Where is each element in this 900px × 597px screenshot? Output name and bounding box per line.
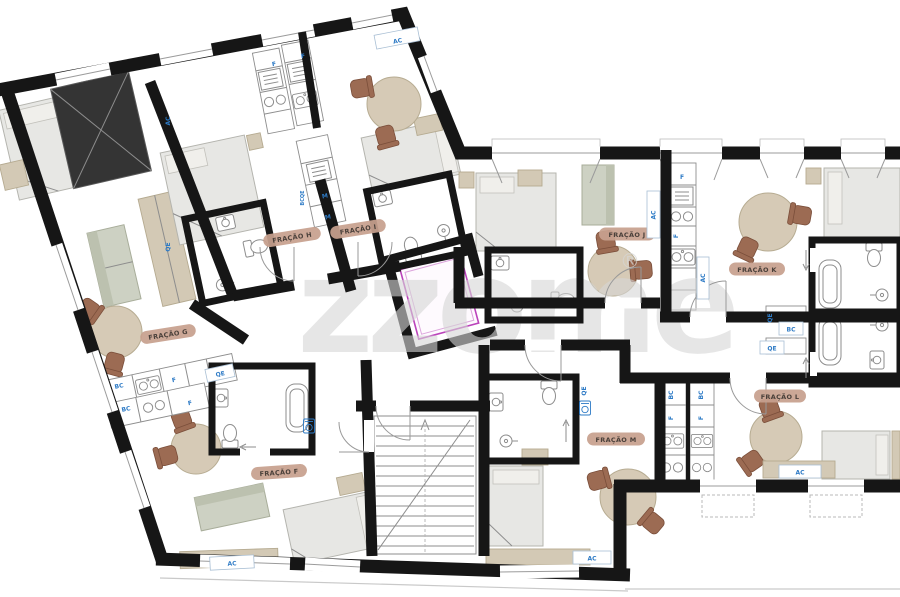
room-label-text: FRAÇÃO M	[596, 435, 637, 444]
wall	[366, 360, 372, 556]
code-label-qe: QE	[767, 313, 774, 322]
door-arc	[339, 420, 374, 452]
code-label-ac: AC	[779, 465, 821, 478]
bed-icon	[806, 168, 900, 238]
svg-text:AC: AC	[587, 556, 597, 563]
room-label-fracao-l: FRAÇÃO L	[754, 390, 806, 403]
bathtub-icon	[819, 317, 841, 365]
code-label-f: F	[698, 416, 705, 420]
code-label-bc: BC	[779, 322, 803, 335]
toilet-icon	[222, 425, 238, 449]
svg-text:AC: AC	[795, 470, 805, 477]
window	[760, 139, 804, 178]
window	[500, 571, 579, 572]
code-label-f: F	[680, 174, 684, 181]
toilet-icon	[866, 243, 882, 267]
toilet-icon	[541, 381, 557, 405]
door-arc	[240, 444, 270, 456]
shower-icon	[870, 289, 888, 301]
closet-icon	[518, 170, 542, 186]
room-label-fracao-g: FRAÇÃO G	[139, 323, 196, 345]
svg-text:AC: AC	[651, 210, 658, 220]
watermark-registered-icon: ®	[620, 249, 640, 273]
code-label-qe: QE	[581, 386, 588, 395]
nightstand-icon	[336, 472, 365, 495]
sink-icon	[215, 214, 236, 231]
wall	[192, 304, 246, 340]
washing-machine-icon	[580, 401, 591, 415]
window	[808, 486, 864, 517]
svg-text:AC: AC	[700, 273, 707, 283]
code-label-f: F	[668, 416, 675, 420]
bathroom-wall	[484, 377, 576, 461]
code-label-ac: AC	[647, 191, 660, 238]
stairs	[374, 416, 476, 554]
window	[125, 452, 144, 508]
room-label-fracao-k: FRAÇÃO K	[729, 263, 785, 276]
kitchen-counter	[658, 383, 714, 480]
svg-text:BC: BC	[787, 327, 797, 334]
wall	[233, 285, 294, 296]
sink-icon	[214, 389, 228, 407]
code-label-ac: AC	[573, 551, 611, 564]
code-label-ac: AC	[210, 555, 255, 570]
code-label-bcqe: BCQE	[300, 190, 306, 206]
floor-plan-image: zzome ®	[0, 0, 900, 597]
door-arc	[803, 248, 817, 272]
room-label-fracao-m: FRAÇÃO M	[587, 433, 645, 446]
svg-text:AC: AC	[227, 560, 237, 567]
bathtub-icon	[819, 260, 841, 308]
window	[352, 15, 392, 23]
sofa-icon	[582, 165, 614, 225]
closet-icon	[892, 431, 900, 479]
sink-icon	[489, 393, 503, 411]
room-label-fracao-j: FRAÇÃO J	[599, 228, 655, 241]
room-label-text: FRAÇÃO J	[609, 230, 646, 239]
site-line	[160, 578, 628, 591]
room-label-text: FRAÇÃO L	[761, 392, 800, 401]
code-label-f: F	[673, 234, 680, 238]
dining-table-icon	[732, 193, 812, 264]
nightstand-icon	[459, 172, 474, 188]
nightstand-icon	[806, 168, 821, 184]
sofa-icon	[194, 483, 270, 531]
code-label-bc: BC	[668, 390, 675, 400]
code-label-bc: BC	[698, 390, 705, 400]
svg-text:QE: QE	[767, 346, 776, 353]
bathtub-icon	[286, 384, 308, 432]
code-label-qe: QE	[165, 242, 172, 251]
bathroom-fixtures	[489, 381, 569, 447]
chair-icon	[787, 202, 812, 227]
room-label-fracao-f: FRAÇÃO F	[251, 464, 308, 481]
sofa-icon	[87, 225, 141, 308]
bathroom-fixtures	[214, 384, 308, 448]
window	[700, 486, 756, 517]
code-label-ac: AC	[165, 116, 172, 126]
bathroom-fixtures	[819, 243, 888, 369]
window	[305, 564, 360, 567]
sink-icon	[870, 351, 884, 369]
code-label-ac: AC	[697, 257, 709, 299]
room-label-text: FRAÇÃO K	[737, 265, 777, 274]
code-label-qe: QE	[760, 341, 784, 354]
chair-icon	[349, 75, 374, 100]
floor-plan-canvas: zzome ®	[0, 0, 900, 597]
shower-icon	[500, 435, 518, 447]
